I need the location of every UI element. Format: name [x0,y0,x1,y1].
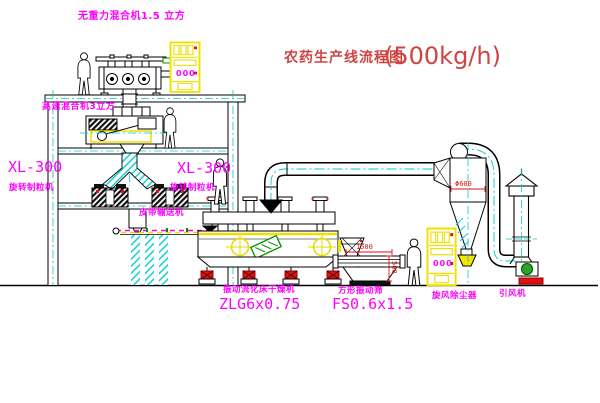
page-title-capacity: (500kg/h) [384,44,501,68]
cabinet2-display: 000 [433,260,453,268]
gravity-free-mixer-label: 无重力混合机1.5 立方 [78,12,185,22]
granulator-left-model: XL-300 [8,160,62,175]
operator-middle-floor [164,108,176,148]
belt-conveyor-label: 皮带输送机 [139,209,184,218]
dryer-label: 振动流化床干燥机 [223,286,295,295]
screen-height-dimension: 500 [390,261,397,274]
cyclone-diameter-dimension: Φ600 [455,181,472,188]
fan-label: 引风机 [499,290,526,299]
operator-ground [407,239,421,286]
control-cabinet-2 [427,229,455,286]
flow-diagram-canvas: 无重力混合机1.5 立方 农药生产线流程图 (500kg/h) 高速混合机3立方… [0,0,600,403]
screen-length-dimension: 1500 [356,244,373,251]
dryer-model: ZLG6x0.75 [219,297,300,312]
support-columns [131,235,168,285]
vibration-mounts [199,271,341,284]
screen-model: FS0.6x1.5 [332,297,413,312]
cabinet1-display: 000 [176,70,196,78]
control-cabinet-1 [171,42,200,92]
high-speed-mixer [80,107,170,153]
granulator-left-label: 旋转制粒机 [9,184,54,193]
fluid-bed-dryer [198,197,341,284]
y-chute [103,153,156,189]
cyclone-label: 旋风除尘器 [432,292,477,301]
granulator-right-model: XL-300 [177,161,231,176]
operator-roof [78,53,90,95]
granulator-right-label: 旋转制粒机 [170,184,215,193]
induced-draft-fan [516,262,543,284]
high-speed-mixer-label: 高速混合机3立方 [42,103,115,112]
